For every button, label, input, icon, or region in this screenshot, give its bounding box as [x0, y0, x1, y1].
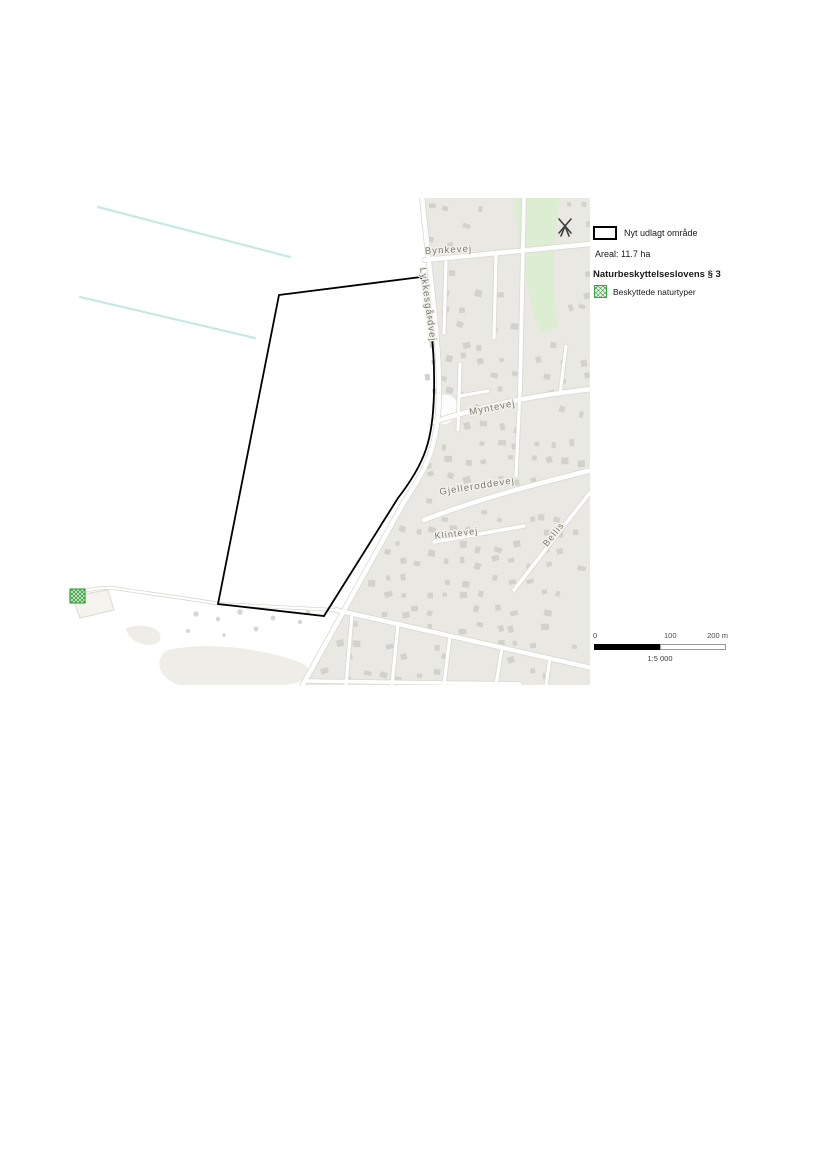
legend-new-area-row: Nyt udlagt område [593, 226, 753, 240]
legend-law-header: Naturbeskyttelseslovens § 3 [593, 269, 753, 280]
document-page: Bynkevej Lykkesgårdvej Myntevej Gjellero… [0, 0, 827, 1169]
legend: Nyt udlagt område Areal: 11.7 ha Naturbe… [593, 226, 753, 298]
legend-protected-row: Beskyttede naturtyper [593, 285, 753, 298]
scalebar-tick-0: 0 [593, 631, 597, 640]
legend-protected-symbol [594, 285, 607, 298]
legend-new-area-symbol [593, 226, 617, 240]
map-figure: Bynkevej Lykkesgårdvej Myntevej Gjellero… [68, 198, 590, 685]
scalebar-bar-white [660, 644, 726, 650]
legend-protected-label: Beskyttede naturtyper [613, 287, 696, 297]
scalebar-ratio: 1:5 000 [592, 654, 728, 663]
scalebar-ticks: 0 100 200 m [592, 631, 728, 642]
scalebar-bar [592, 644, 728, 650]
scalebar-bar-black [594, 644, 660, 650]
map-canvas: Bynkevej Lykkesgårdvej Myntevej Gjellero… [68, 198, 590, 685]
scalebar-tick-200: 200 m [707, 631, 728, 640]
scalebar: 0 100 200 m 1:5 000 [592, 631, 728, 667]
scalebar-tick-100: 100 [664, 631, 677, 640]
legend-area-value: Areal: 11.7 ha [595, 249, 753, 259]
legend-new-area-label: Nyt udlagt område [624, 228, 698, 238]
